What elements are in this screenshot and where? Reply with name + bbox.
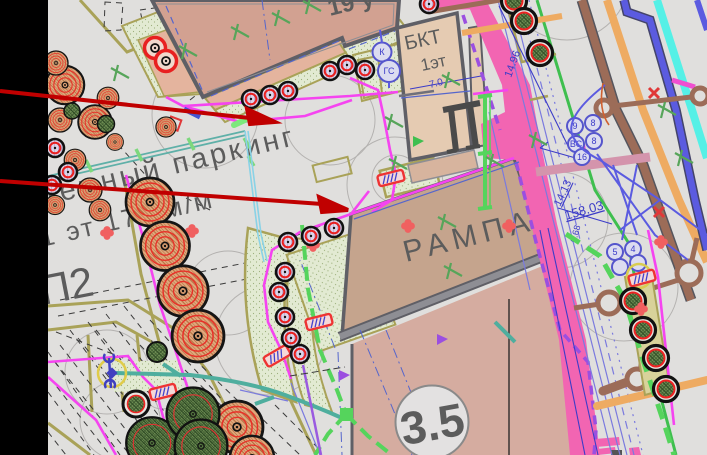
svg-text:3.5: 3.5 (396, 393, 468, 455)
svg-text:8: 8 (591, 136, 596, 146)
svg-text:К: К (379, 47, 385, 57)
svg-text:16: 16 (577, 152, 587, 162)
svg-text:4: 4 (630, 244, 635, 254)
svg-text:ГС: ГС (384, 66, 395, 76)
svg-text:8: 8 (590, 118, 595, 128)
svg-text:5: 5 (612, 247, 617, 257)
